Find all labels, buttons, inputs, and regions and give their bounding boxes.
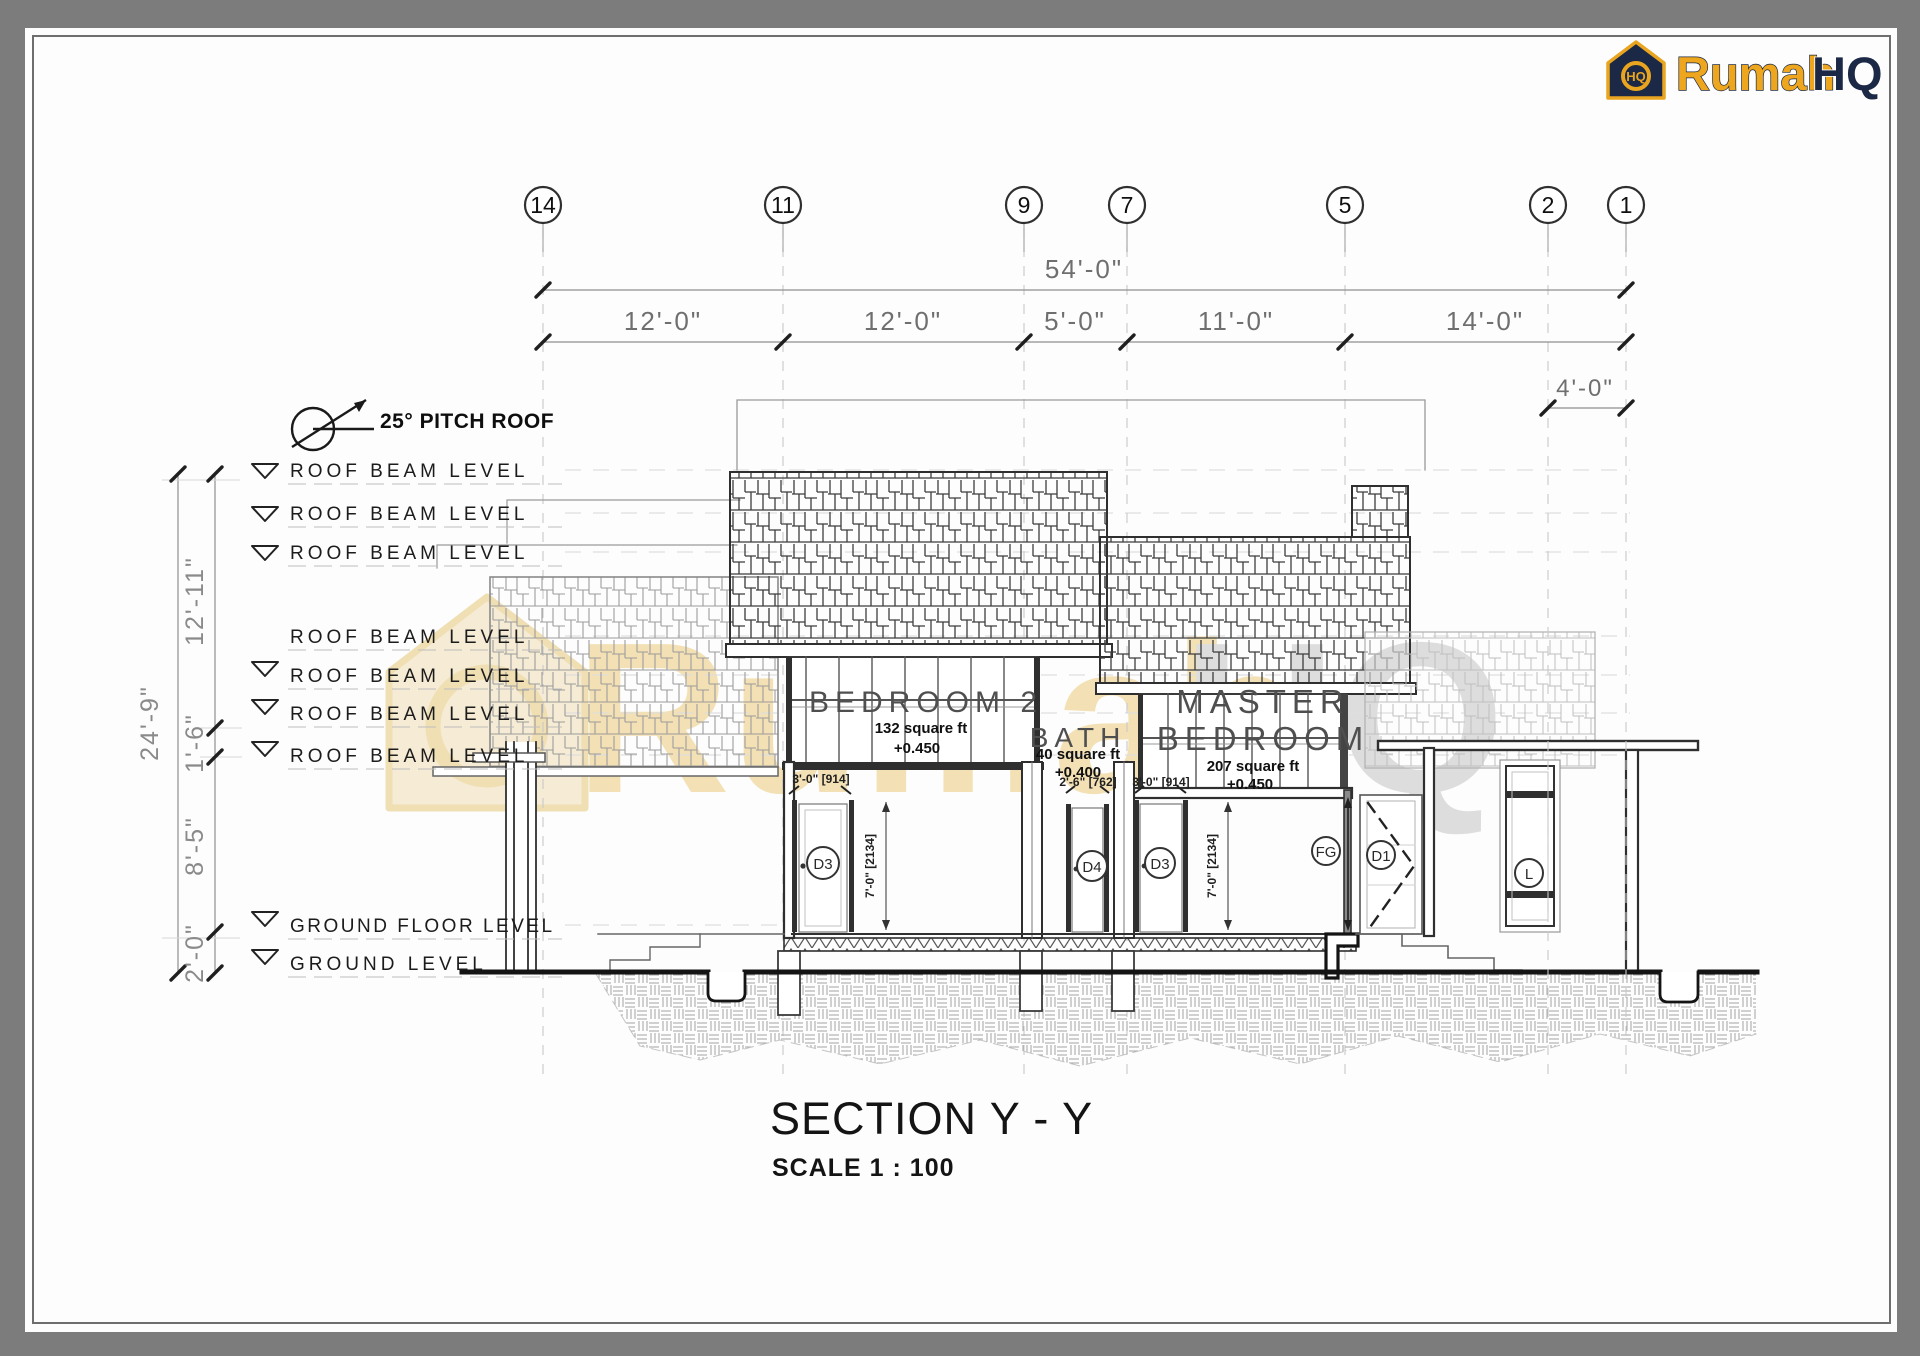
dim-overall-height: 24'-9" xyxy=(136,685,164,761)
grid-bubble-2: 2 xyxy=(1542,192,1555,218)
roof-central-fascia xyxy=(726,644,1112,657)
porch-post xyxy=(1626,750,1638,972)
tag-d1: D1 xyxy=(1371,848,1390,865)
room-name-master-1: MASTER xyxy=(1176,683,1350,720)
dim-height-seg-1: 12'-11" xyxy=(181,556,209,646)
footing-left xyxy=(778,951,800,1015)
tag-d3-bath: D3 xyxy=(1150,856,1169,873)
dim-height-seg-3: 8'-5" xyxy=(181,816,209,876)
grid-bubble-1: 1 xyxy=(1620,192,1633,218)
tag-window-l: L xyxy=(1525,866,1533,883)
dim-d3-width-bath: 3'-0" [914] xyxy=(1132,775,1189,789)
dim-d3-width-bedroom2: 3'-0" [914] xyxy=(792,772,849,786)
level-roof-beam-3: ROOF BEAM LEVEL xyxy=(290,543,528,564)
drawing-title: SECTION Y - Y xyxy=(770,1093,1093,1144)
room-level-bedroom2: +0.450 xyxy=(894,740,940,757)
logo-monogram: HQ xyxy=(1626,69,1646,84)
dim-door-height-2: 7'-0" [2134] xyxy=(1205,834,1219,898)
roof-right-raised-block xyxy=(1352,486,1408,537)
section-drawing: Rumah HQ xyxy=(0,0,1920,1356)
dim-d4-width: 2'-6" [762] xyxy=(1059,775,1116,789)
logo-suffix-text: HQ xyxy=(1812,47,1883,100)
grid-bubble-5: 5 xyxy=(1339,192,1352,218)
room-area-bath: 40 square ft xyxy=(1036,746,1120,763)
drain-right xyxy=(1660,972,1698,1002)
pitch-label: 25° PITCH ROOF xyxy=(380,410,554,433)
dim-bay-1: 12'-0" xyxy=(624,306,702,336)
drawing-canvas: Rumah HQ xyxy=(0,0,1920,1356)
roof-right-shingles xyxy=(1100,537,1410,683)
level-ground-floor: GROUND FLOOR LEVEL xyxy=(290,916,555,937)
room-area-master: 207 square ft xyxy=(1207,758,1300,775)
dim-right-offset: 4'-0" xyxy=(1556,375,1614,402)
roof-central-shingles xyxy=(730,472,1107,644)
footing-right xyxy=(1112,951,1134,1011)
footing-mid xyxy=(1020,951,1042,1011)
window-l xyxy=(1500,760,1560,932)
dim-bay-4: 11'-0" xyxy=(1198,306,1274,336)
grid-bubble-14: 14 xyxy=(530,192,556,218)
level-ground: GROUND LEVEL xyxy=(290,954,487,975)
level-roof-beam-4: ROOF BEAM LEVEL xyxy=(290,627,528,648)
grid-bubble-9: 9 xyxy=(1018,192,1031,218)
tag-d3-bedroom2: D3 xyxy=(813,856,832,873)
tag-d4-bath: D4 xyxy=(1082,859,1101,876)
level-roof-beam-6: ROOF BEAM LEVEL xyxy=(290,704,528,725)
room-name-master-2: BEDROOM xyxy=(1157,720,1370,757)
dim-bay-2: 12'-0" xyxy=(864,306,942,336)
brand-logo: HQ Rumah HQ xyxy=(1608,42,1883,100)
dim-bay-5: 14'-0" xyxy=(1446,306,1524,336)
drawing-scale: SCALE 1 : 100 xyxy=(772,1154,955,1182)
dim-overall-width: 54'-0" xyxy=(1045,254,1123,284)
level-roof-beam-5: ROOF BEAM LEVEL xyxy=(290,666,528,687)
drain-left xyxy=(708,972,745,1001)
level-roof-beam-1: ROOF BEAM LEVEL xyxy=(290,461,528,482)
level-roof-beam-7: ROOF BEAM LEVEL xyxy=(290,746,528,767)
roof-left-eave xyxy=(433,767,778,776)
level-roof-beam-2: ROOF BEAM LEVEL xyxy=(290,504,528,525)
grid-bubble-7: 7 xyxy=(1121,192,1134,218)
room-area-bedroom2: 132 square ft xyxy=(875,720,968,737)
grid-bubble-11: 11 xyxy=(771,192,795,218)
room-name-bedroom2: BEDROOM 2 xyxy=(809,686,1043,719)
tag-fg: FG xyxy=(1316,844,1337,861)
room-level-master: +0.450 xyxy=(1227,776,1273,793)
dim-door-height-1: 7'-0" [2134] xyxy=(863,834,877,898)
dim-height-seg-2: 1'-6" xyxy=(181,713,209,773)
dim-bay-3: 5'-0" xyxy=(1044,306,1106,336)
floor-slab xyxy=(784,938,1356,951)
dim-height-seg-4: 2'-0" xyxy=(181,923,209,983)
